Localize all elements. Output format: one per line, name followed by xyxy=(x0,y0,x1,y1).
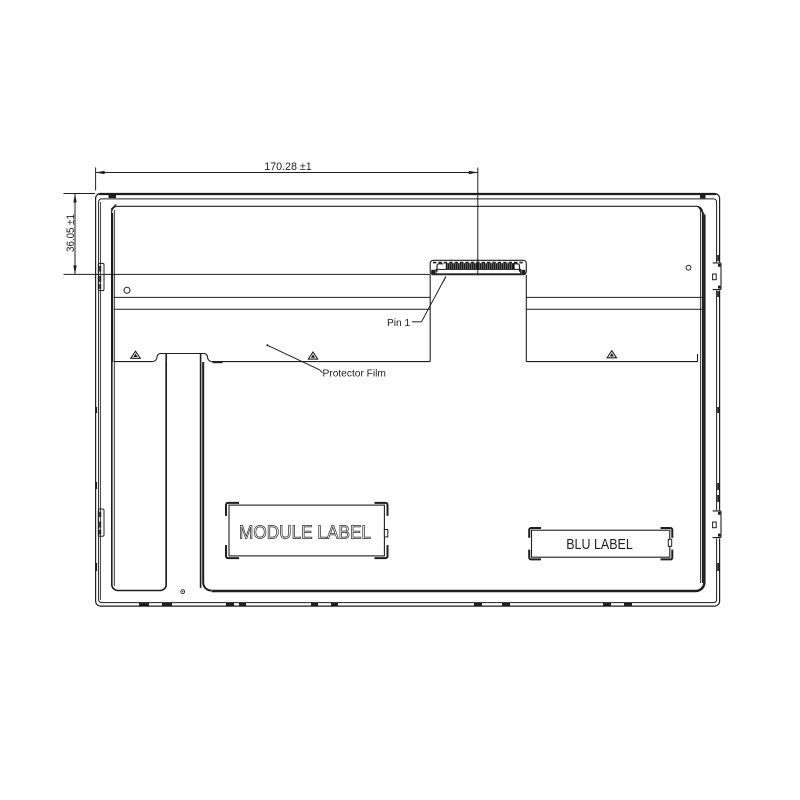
svg-text:Pin 1: Pin 1 xyxy=(387,318,411,329)
svg-text:MODULE LABEL: MODULE LABEL xyxy=(239,522,371,543)
svg-text:36.05 ±1: 36.05 ±1 xyxy=(65,214,77,252)
svg-text:Protector Film: Protector Film xyxy=(323,368,386,379)
svg-text:170.28 ±1: 170.28 ±1 xyxy=(264,161,312,173)
svg-text:BLU LABEL: BLU LABEL xyxy=(566,536,633,553)
